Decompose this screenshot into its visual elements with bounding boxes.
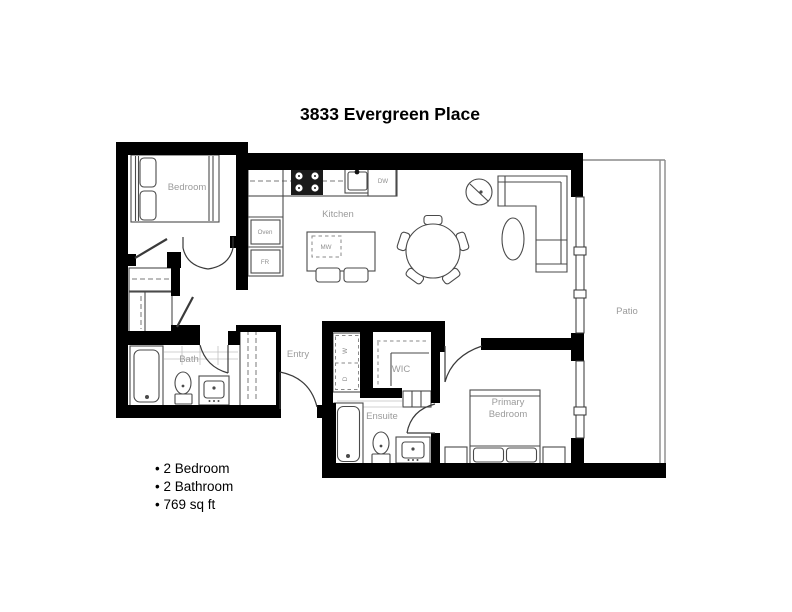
ensuite-shelf <box>403 391 431 407</box>
microwave-label: MW <box>321 244 332 251</box>
dishwasher-label: DW <box>378 178 388 185</box>
kitchen-label: Kitchen <box>322 209 354 220</box>
bath-label: Bath <box>179 354 199 365</box>
patio-label: Patio <box>616 306 638 317</box>
ensuite-door <box>407 404 435 433</box>
bedroom-closet-door <box>135 239 167 258</box>
floor-plan-svg: 3833 Evergreen Place Bedroom Kitchen Ent… <box>0 0 792 612</box>
coffee-table <box>502 218 524 260</box>
primary-bedroom-label-line2: Bedroom <box>489 409 528 420</box>
kitchen-island <box>307 232 375 282</box>
entry-label: Entry <box>287 349 309 360</box>
bedroom-closet <box>129 268 172 291</box>
wic-label: WIC <box>392 364 411 375</box>
fridge-label: FR <box>261 259 270 266</box>
stove <box>291 168 323 195</box>
linen-closet <box>129 292 172 332</box>
bedroom-double-door <box>183 237 233 269</box>
bath-toilet <box>175 372 192 404</box>
washer-dryer-closet <box>333 333 361 392</box>
bath-tub <box>130 346 163 406</box>
ensuite-toilet <box>372 432 390 464</box>
entry-closet <box>240 326 277 407</box>
primary-bedroom-label-line1: Primary <box>492 397 525 408</box>
patio-glass-wall <box>574 197 586 438</box>
stat-area: • 769 sq ft <box>155 497 216 512</box>
ensuite-vanity <box>396 437 430 463</box>
stat-bedrooms: • 2 Bedroom <box>155 461 230 476</box>
linen-closet-door <box>177 297 193 327</box>
primary-bedroom-door <box>445 346 482 382</box>
bath-vanity <box>199 376 229 405</box>
entry-door <box>280 372 317 409</box>
page-title: 3833 Evergreen Place <box>300 104 480 124</box>
ensuite-label: Ensuite <box>366 411 398 422</box>
washer-label: W <box>342 348 349 354</box>
oven-label: Oven <box>258 229 273 236</box>
bedroom-label: Bedroom <box>168 182 207 193</box>
stat-bathrooms: • 2 Bathroom <box>155 479 233 494</box>
ensuite-tub <box>334 403 363 465</box>
round-side-table <box>466 179 492 205</box>
floor-plan-page: 3833 Evergreen Place Bedroom Kitchen Ent… <box>0 0 792 612</box>
dryer-label: D <box>342 376 349 381</box>
dining-table <box>396 216 469 286</box>
